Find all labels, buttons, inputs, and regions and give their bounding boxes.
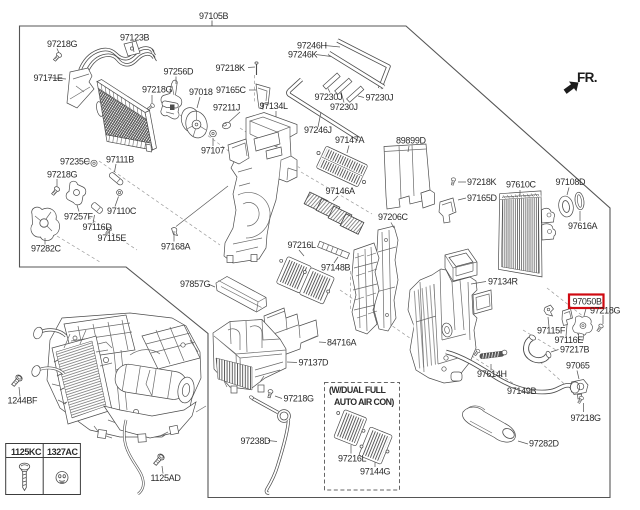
svg-text:97256D: 97256D — [164, 67, 195, 77]
svg-text:AUTO AIR CON): AUTO AIR CON) — [334, 397, 394, 407]
svg-text:97218G: 97218G — [284, 394, 315, 404]
svg-text:97218G: 97218G — [590, 306, 621, 316]
svg-text:97246J: 97246J — [304, 125, 332, 135]
svg-text:97238D: 97238D — [241, 436, 272, 446]
svg-text:97148B: 97148B — [321, 263, 351, 273]
svg-text:97147A: 97147A — [335, 135, 365, 145]
svg-text:97168A: 97168A — [161, 242, 191, 252]
svg-text:97246K: 97246K — [288, 50, 318, 60]
svg-text:1327AC: 1327AC — [47, 447, 79, 457]
svg-text:97217B: 97217B — [560, 345, 590, 355]
svg-text:97218K: 97218K — [216, 63, 246, 73]
svg-text:97107: 97107 — [201, 146, 225, 156]
svg-text:97134R: 97134R — [488, 277, 519, 287]
svg-text:97065: 97065 — [566, 361, 590, 371]
svg-text:97616A: 97616A — [568, 221, 598, 231]
svg-text:97134L: 97134L — [260, 101, 289, 111]
svg-text:97137D: 97137D — [299, 358, 330, 368]
svg-text:97282C: 97282C — [31, 244, 62, 254]
svg-text:97857G: 97857G — [180, 279, 211, 289]
svg-text:FR.: FR. — [577, 70, 597, 85]
svg-text:97144G: 97144G — [360, 467, 391, 477]
svg-text:97116E: 97116E — [555, 335, 584, 345]
svg-text:1125AD: 1125AD — [151, 473, 182, 483]
svg-text:97211J: 97211J — [213, 103, 240, 113]
svg-text:1244BF: 1244BF — [8, 396, 39, 406]
svg-text:97165D: 97165D — [467, 193, 498, 203]
svg-text:97610C: 97610C — [506, 180, 537, 190]
svg-text:97146A: 97146A — [326, 186, 356, 196]
svg-text:97111B: 97111B — [106, 155, 134, 165]
svg-text:97110C: 97110C — [107, 206, 137, 216]
svg-text:97257F: 97257F — [64, 212, 94, 222]
svg-text:97206C: 97206C — [378, 212, 409, 222]
svg-text:97218G: 97218G — [47, 39, 78, 49]
svg-text:97218K: 97218K — [467, 177, 497, 187]
svg-text:89899D: 89899D — [396, 136, 427, 146]
svg-text:97216L: 97216L — [288, 240, 317, 250]
svg-text:97123B: 97123B — [120, 33, 150, 43]
svg-text:84716A: 84716A — [327, 338, 357, 348]
svg-text:97165C: 97165C — [216, 85, 247, 95]
svg-text:97230J: 97230J — [366, 93, 394, 103]
svg-text:1125KC: 1125KC — [11, 447, 42, 457]
svg-text:97149B: 97149B — [507, 386, 537, 396]
svg-text:97115F: 97115F — [537, 326, 566, 336]
svg-text:97218G: 97218G — [571, 413, 602, 423]
svg-text:97108D: 97108D — [556, 177, 587, 187]
svg-text:97230J: 97230J — [330, 102, 358, 112]
svg-text:97282D: 97282D — [529, 439, 560, 449]
svg-text:97018: 97018 — [189, 87, 213, 97]
svg-text:(W/DUAL FULL: (W/DUAL FULL — [329, 385, 386, 395]
svg-text:97216L: 97216L — [338, 454, 367, 464]
svg-text:97116D: 97116D — [83, 222, 113, 232]
svg-text:97614H: 97614H — [477, 369, 507, 379]
svg-text:97105B: 97105B — [199, 11, 229, 21]
svg-text:97235C: 97235C — [60, 157, 91, 167]
svg-text:97230J: 97230J — [315, 92, 343, 102]
svg-text:97171E: 97171E — [34, 73, 64, 83]
svg-text:97218G: 97218G — [47, 170, 78, 180]
svg-text:97115E: 97115E — [98, 233, 127, 243]
svg-text:97218G: 97218G — [142, 85, 173, 95]
